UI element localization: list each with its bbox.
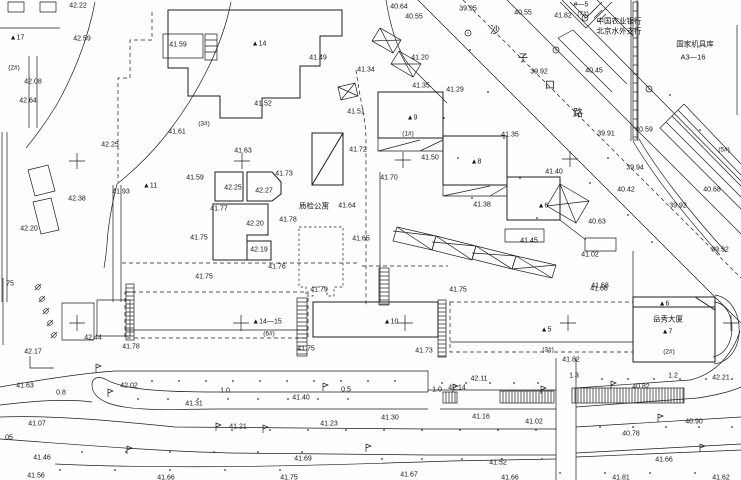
elevation-label: 40.82: [632, 384, 650, 391]
elevation-label: 39.92: [669, 203, 687, 210]
dot-marker: [137, 398, 139, 400]
survey-grid-cross: [69, 153, 85, 169]
elevation-label: 40.45: [585, 68, 603, 75]
elevation-label: 41.51: [347, 109, 365, 116]
elevation-label: 41.35: [412, 83, 430, 90]
building-label: ▲7: [662, 329, 673, 336]
dot-marker: [345, 429, 347, 431]
dot-marker: [469, 49, 471, 51]
elevation-label: 41.38: [473, 202, 491, 209]
lamp-post-icon: [323, 383, 328, 391]
unit-number-label: (2#): [8, 65, 20, 72]
tree-icon: [553, 47, 559, 53]
elevation-label: 41.78: [122, 344, 140, 351]
dot-marker: [731, 378, 733, 380]
dot-marker: [665, 426, 667, 428]
unit-number-label: (7#): [577, 11, 589, 18]
survey-grid-cross: [723, 315, 739, 331]
elevation-label: 41.56: [27, 473, 45, 480]
road-width-label: 1.0: [220, 388, 230, 395]
dot-marker: [59, 469, 61, 471]
elevation-label: 39.91: [597, 131, 615, 138]
elevation-label: 41.45: [520, 238, 538, 245]
elevation-label: 42.20: [20, 226, 38, 233]
building-label: ▲10: [384, 319, 399, 326]
name-label: 北京水外支行: [597, 26, 642, 36]
dot-marker: [679, 378, 681, 380]
dot-marker: [178, 380, 180, 382]
elevation-label: 41.73: [415, 348, 433, 355]
survey-map-canvas: 42.2242.5941.5942.0842.6442.2541.6141.49…: [0, 0, 741, 480]
elevation-label: 40.64: [390, 4, 408, 11]
survey-grid-cross: [397, 315, 413, 331]
hatched-wall: [500, 391, 554, 403]
unit-number-label: (3#): [542, 347, 554, 354]
dot-marker: [367, 380, 369, 382]
elevation-label: 41.46: [33, 455, 51, 462]
building-label: ▲14: [252, 41, 267, 48]
elevation-label: 41.78: [279, 217, 297, 224]
dot-marker: [313, 380, 315, 382]
building-label: ▲5: [541, 327, 552, 334]
lamp-post-icon: [658, 414, 663, 422]
elevation-label: 41.69: [294, 456, 312, 463]
elevation-label: 42.11: [471, 376, 488, 383]
elevation-label: 41.07: [28, 421, 46, 428]
tree-icon: [646, 86, 652, 92]
elevation-label: 41.79: [310, 287, 328, 294]
hatched-wall: [443, 392, 457, 403]
dot-marker: [497, 429, 499, 431]
elevation-label: 41.66: [157, 475, 175, 480]
elevation-label: 41.52: [254, 101, 272, 108]
elevation-label: 42.19: [250, 247, 268, 254]
lamp-post-icon: [96, 364, 101, 372]
elevation-label: 40.55: [405, 14, 423, 21]
elevation-label: 42.17: [24, 349, 42, 356]
elevation-label: 41.40: [292, 395, 310, 402]
elevation-label: 41.75: [280, 475, 298, 480]
elevation-label: 41.82: [562, 357, 580, 364]
survey-grid-cross: [560, 315, 576, 331]
lamp-post-icon: [263, 425, 268, 433]
elevation-label: 42.27: [255, 188, 273, 195]
elevation-label: 40.59: [635, 127, 653, 134]
dot-marker: [340, 380, 342, 382]
elevation-label: 41.59: [169, 42, 187, 49]
survey-grid-cross: [69, 315, 85, 331]
elevation-label: 39.95: [459, 6, 477, 13]
elevation-label: 42.44: [84, 335, 102, 342]
dot-marker: [461, 458, 463, 460]
elevation-label: 41.76: [268, 264, 286, 271]
elevation-label: 41.29: [446, 87, 464, 94]
road-width-label: 0.5: [341, 387, 351, 394]
building-label: ▲14—15: [252, 319, 282, 326]
unit-number-label: (5#): [718, 147, 730, 154]
elevation-label: 41.77: [210, 206, 228, 213]
road-name-char: 口: [545, 81, 555, 92]
elevation-label: 40.78: [622, 431, 640, 438]
elevation-label: 41.75: [190, 235, 208, 242]
dot-marker: [536, 217, 538, 219]
elevation-label: 41.66: [655, 457, 673, 464]
dot-marker: [307, 429, 309, 431]
name-label: A3—16: [680, 53, 705, 62]
dot-marker: [269, 429, 271, 431]
dot-marker: [347, 398, 349, 400]
dot-marker: [301, 451, 303, 453]
dot-marker: [604, 472, 606, 474]
survey-map-page: 42.2242.5941.5942.0842.6442.2541.6141.49…: [0, 0, 741, 480]
dot-marker: [286, 380, 288, 382]
dot-marker: [394, 380, 396, 382]
elevation-label: 41.34: [357, 67, 375, 74]
elevation-label: 39.92: [530, 69, 548, 76]
dot-marker: [699, 129, 701, 131]
dot-marker: [731, 426, 733, 428]
elevation-label: 41.75: [195, 274, 213, 281]
dot-marker: [167, 398, 169, 400]
dot-marker: [443, 117, 445, 119]
building-block-14: [163, 10, 342, 118]
building-label: #—5: [574, 2, 589, 9]
dot-marker: [213, 451, 215, 453]
elevation-label: 75: [6, 281, 14, 288]
lamp-post-icon: [366, 444, 371, 452]
name-label: 中国农业银行: [597, 16, 642, 26]
elevation-label: 41.63: [16, 383, 34, 390]
elevation-label: 41.82: [554, 13, 572, 20]
dot-marker: [694, 472, 696, 474]
lamp-post-icon: [108, 389, 113, 397]
dot-marker: [535, 429, 537, 431]
road-width-label: 1.2: [668, 373, 678, 380]
dot-marker: [519, 177, 521, 179]
elevation-label: 41.21: [229, 424, 247, 431]
dot-marker: [381, 458, 383, 460]
building-label: ▲6: [538, 203, 549, 210]
lamp-post-icon: [127, 446, 132, 454]
elevation-label: 41.40: [545, 169, 563, 176]
building-label: ▲9: [407, 115, 418, 122]
elevation-label: 40.63: [588, 219, 606, 226]
survey-point-icon: [39, 296, 45, 302]
elevation-label: 41.65: [352, 236, 370, 243]
elevation-label: 42.64: [19, 98, 37, 105]
dot-marker: [651, 241, 653, 243]
elevation-label: 42.21: [712, 375, 730, 382]
elevation-label: 41.52: [489, 460, 507, 467]
elevation-label: 41.59: [186, 175, 204, 182]
road-dot-markers: [59, 49, 733, 474]
dot-marker: [421, 458, 423, 460]
dot-marker: [653, 378, 655, 380]
name-label: 国家机具库: [676, 39, 714, 49]
elevation-label: 41.23: [320, 421, 338, 428]
elevation-label: 41.62: [712, 475, 730, 480]
dot-marker: [607, 157, 609, 159]
survey-grid-cross: [234, 153, 250, 169]
hatched-wall: [572, 388, 684, 403]
dot-marker: [541, 458, 543, 460]
road-width-label: 1.0: [432, 387, 442, 394]
elevation-label: 42.02: [120, 383, 138, 390]
bottom-building-row: [30, 292, 739, 368]
survey-grid-cross: [233, 315, 249, 331]
elevation-label: 40.42: [617, 187, 635, 194]
dot-marker: [151, 380, 153, 382]
elevation-label: 42.14: [448, 385, 466, 392]
elevation-label: 41.02: [525, 419, 543, 426]
survey-grid-crosses: [69, 151, 739, 331]
topleft-driveway: [0, 2, 231, 345]
dot-marker: [421, 429, 423, 431]
building-label: ▲8: [471, 159, 482, 166]
elevation-label: 41.93: [112, 189, 130, 196]
elevation-label: 41.75: [297, 346, 315, 353]
building-label: ▲11: [143, 183, 157, 190]
elevation-label: 41.63: [234, 148, 252, 155]
dot-marker: [81, 451, 83, 453]
elevation-label: 41.66: [501, 475, 519, 480]
survey-grid-cross: [562, 151, 578, 167]
building-label: ▲6: [659, 301, 670, 308]
dot-marker: [698, 426, 700, 428]
elevation-label: 41.61: [168, 129, 186, 136]
elevation-label: 40.68: [703, 187, 721, 194]
road-name-char: 子: [518, 53, 528, 65]
survey-point-icon: [51, 332, 57, 338]
elevation-label: 42.08: [24, 79, 42, 86]
elevation-label: 41.72: [349, 147, 367, 154]
dot-marker: [601, 378, 603, 380]
elevation-label: 41.30: [381, 415, 399, 422]
dot-marker: [632, 426, 634, 428]
dot-marker: [669, 94, 671, 96]
elevation-label: 41.02: [581, 252, 599, 259]
road-name-char: 路: [573, 107, 583, 120]
elevation-label: 41.70: [380, 175, 398, 182]
dot-marker: [287, 398, 289, 400]
dot-marker: [627, 214, 629, 216]
elevation-label: 40.55: [514, 10, 532, 17]
dot-marker: [599, 426, 601, 428]
dot-marker: [257, 451, 259, 453]
dot-marker: [227, 398, 229, 400]
elevation-label: 42.20: [246, 221, 264, 228]
map-labels: 42.2242.5941.5942.0842.6442.2541.6141.49…: [3, 2, 730, 480]
building-label: ▲17: [10, 35, 25, 42]
survey-grid-cross: [395, 152, 411, 168]
dot-marker: [627, 378, 629, 380]
dot-marker: [471, 197, 473, 199]
dot-marker: [513, 382, 515, 384]
lamp-post-icon: [700, 444, 705, 452]
dot-marker: [169, 451, 171, 453]
dot-marker: [459, 429, 461, 431]
tree-icon: [465, 30, 471, 36]
elevation-label: 41.50: [421, 155, 439, 162]
dot-marker: [441, 382, 443, 384]
elevation-label: 41.16: [472, 414, 490, 421]
elevation-label: 42.25: [101, 142, 119, 149]
dot-marker: [224, 469, 226, 471]
unit-number-label: (1#): [402, 131, 414, 138]
dot-marker: [589, 182, 591, 184]
elevation-label: 41.31: [185, 401, 203, 408]
dot-marker: [705, 378, 707, 380]
unit-number-label: (6#): [263, 331, 275, 338]
hatched-wall: [438, 300, 446, 357]
elevation-label: 41.67: [400, 472, 418, 479]
survey-point-icon: [35, 284, 41, 290]
elevation-label: 41.49: [309, 55, 327, 62]
dot-marker: [205, 380, 207, 382]
bottom-roads: [0, 331, 741, 480]
elevation-label: 41.75: [449, 287, 467, 294]
dot-marker: [489, 382, 491, 384]
unit-number-label: (3#): [198, 121, 210, 128]
dot-marker: [232, 380, 234, 382]
dot-marker: [114, 469, 116, 471]
elevation-label: 42.59: [73, 36, 91, 43]
dot-marker: [537, 382, 539, 384]
road-name-char: 沙: [490, 25, 500, 37]
survey-point-icon: [47, 320, 53, 326]
elevation-label: 39.92: [711, 247, 729, 254]
dot-marker: [487, 91, 489, 93]
elevation-label: 41.20: [411, 55, 429, 62]
elevation-label: 41.68: [590, 286, 608, 293]
dot-marker: [649, 472, 651, 474]
elevation-label: 42.25: [224, 185, 242, 192]
dot-marker: [383, 429, 385, 431]
elevation-label: 41.35: [501, 132, 519, 139]
dot-marker: [279, 469, 281, 471]
dot-marker: [317, 398, 319, 400]
dot-marker: [257, 398, 259, 400]
elevation-label: 41.64: [338, 203, 356, 210]
hatched-wall: [379, 268, 389, 305]
elevation-label: 39.94: [626, 165, 644, 172]
dot-marker: [559, 472, 561, 474]
survey-point-icon: [43, 308, 49, 314]
road-width-label: 0.8: [56, 390, 66, 397]
dot-marker: [125, 451, 127, 453]
elevation-label: .05: [3, 435, 13, 442]
elevation-label: 42.38: [68, 196, 86, 203]
elevation-label: 40.90: [685, 419, 703, 426]
elevation-label: 41.81: [612, 475, 630, 480]
unit-number-label: (2#): [663, 349, 675, 356]
road-width-label: 1.3: [569, 373, 579, 380]
elevation-label: 41.73: [275, 171, 293, 178]
elevation-label: 42.22: [69, 3, 87, 10]
dot-marker: [259, 380, 261, 382]
dot-marker: [457, 157, 459, 159]
name-label: 岳秀大厦: [653, 314, 683, 324]
name-label: 质检公寓: [299, 201, 329, 211]
dot-marker: [169, 469, 171, 471]
